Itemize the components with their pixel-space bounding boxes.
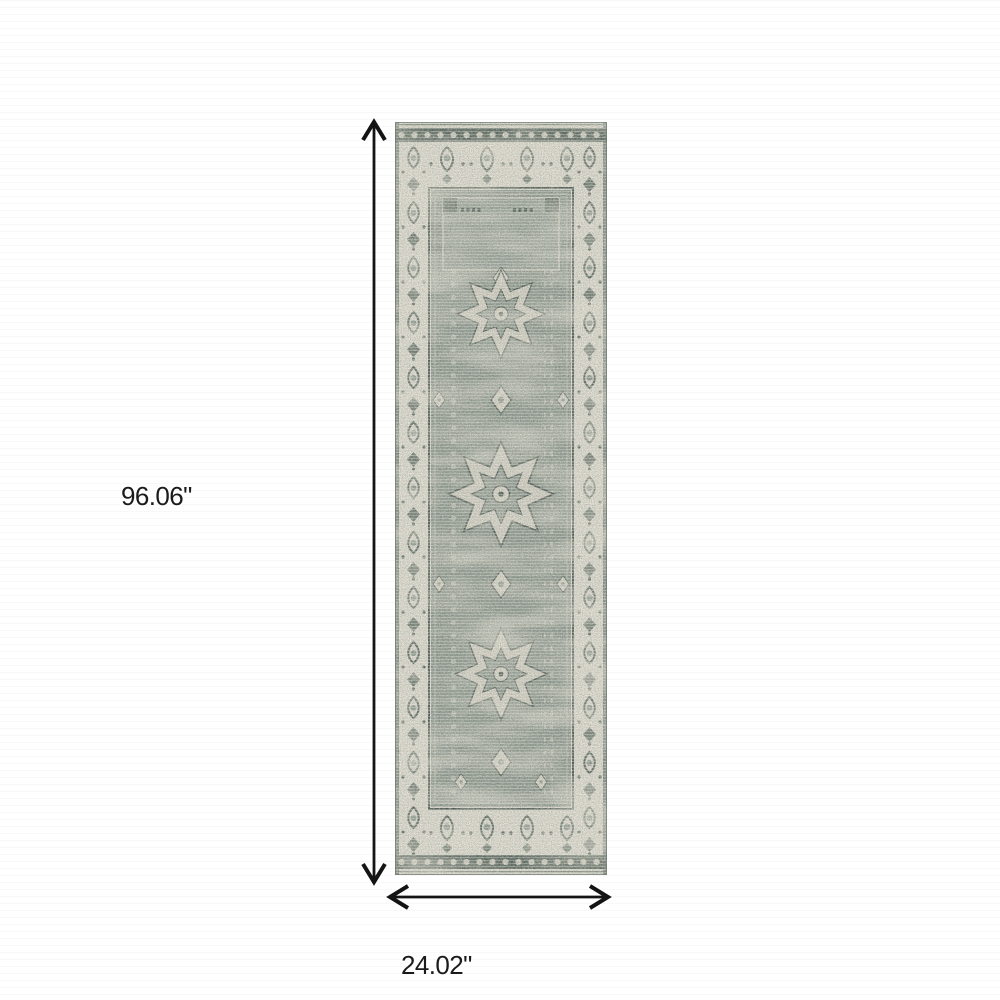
rug-product-image: [395, 122, 607, 875]
rug-distress-texture: [395, 122, 607, 875]
horizontal-double-arrow-icon: [384, 883, 614, 911]
width-dimension-label: 24.02": [401, 952, 472, 978]
vertical-double-arrow-icon: [360, 116, 388, 888]
product-dimension-diagram: 96.06" 24.02": [0, 0, 1000, 1000]
height-dimension-label: 96.06": [121, 483, 192, 509]
rug-illustration: [395, 122, 607, 875]
